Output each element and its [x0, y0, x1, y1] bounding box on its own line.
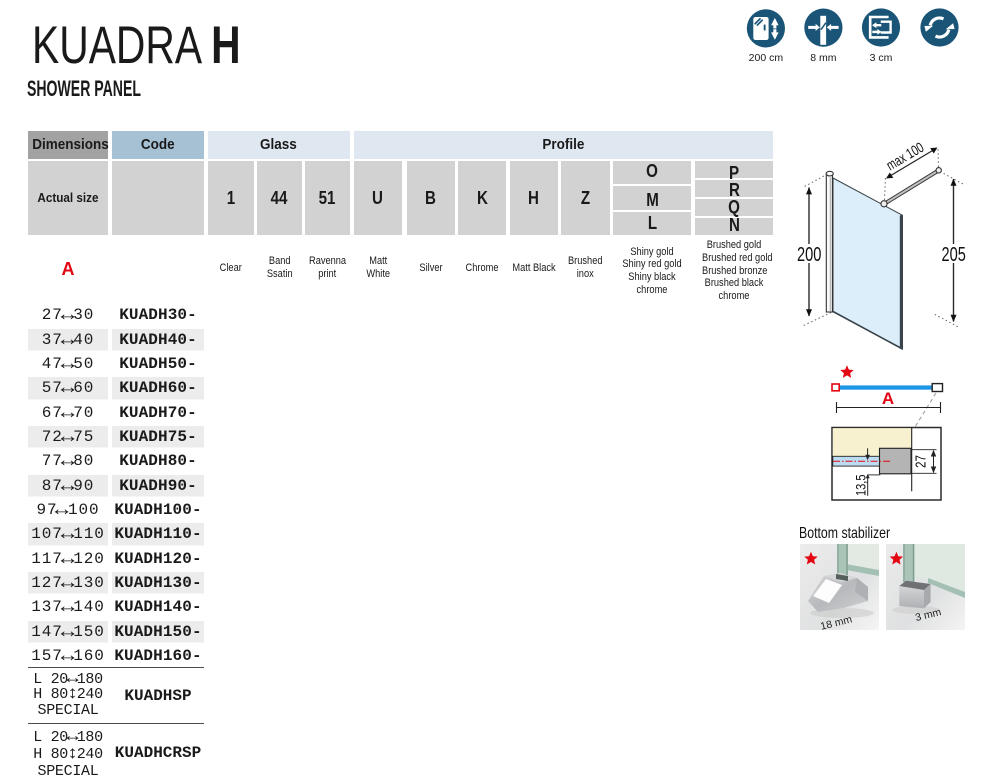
svg-text:205: 205 [942, 243, 966, 266]
svg-text:200 cm: 200 cm [749, 52, 784, 64]
svg-text:8 mm: 8 mm [810, 52, 837, 64]
svg-text:27: 27 [912, 455, 929, 468]
svg-text:max 100: max 100 [884, 139, 927, 173]
svg-text:200: 200 [797, 243, 822, 266]
svg-text:3 cm: 3 cm [870, 52, 893, 64]
svg-text:13,5: 13,5 [853, 474, 868, 496]
svg-text:A: A [882, 389, 894, 408]
